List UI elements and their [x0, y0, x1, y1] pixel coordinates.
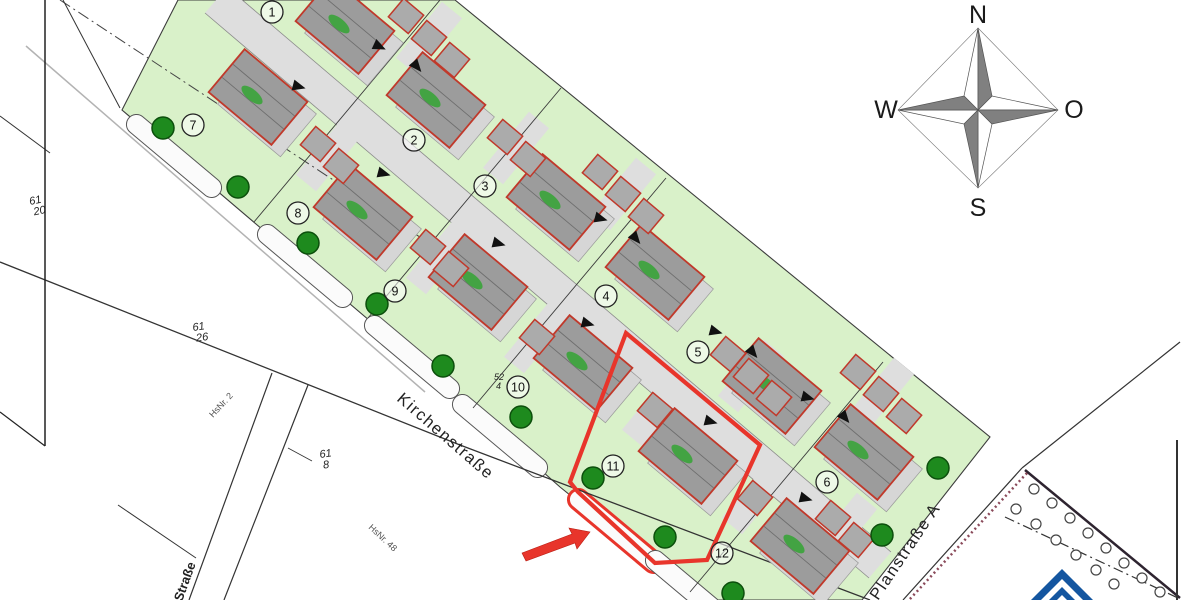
- plot-number-text: 1: [269, 6, 276, 20]
- plot-number-text: 5: [695, 346, 702, 360]
- plot-number-text: 2: [411, 134, 418, 148]
- hedge-circle-icon: [1031, 519, 1041, 529]
- tree-icon: [927, 457, 949, 479]
- hedge-circle-icon: [1101, 543, 1111, 553]
- compass-label-east: O: [1064, 96, 1083, 124]
- hedge-circle-icon: [1137, 573, 1147, 583]
- compass-label-north: N: [969, 1, 987, 29]
- tree-icon: [582, 467, 604, 489]
- site-plan-map: 123456789101112 61206126618524HsNr. 2HsN…: [0, 0, 1200, 600]
- plot-number-text: 6: [824, 476, 831, 490]
- compass-label-south: S: [970, 194, 987, 222]
- plot-number-text: 12: [715, 547, 729, 561]
- plot-number-text: 10: [511, 381, 525, 395]
- hedge-circle-icon: [1155, 587, 1165, 597]
- tree-icon: [871, 524, 893, 546]
- plot-number-text: 7: [190, 119, 197, 133]
- hedge-circle-icon: [1011, 504, 1021, 514]
- plot-number-text: 3: [482, 180, 489, 194]
- hedge-circle-icon: [1119, 558, 1129, 568]
- hedge-circle-icon: [1029, 484, 1039, 494]
- tree-icon: [297, 232, 319, 254]
- plot-number-text: 11: [607, 460, 620, 474]
- tree-icon: [722, 582, 744, 600]
- tree-icon: [432, 355, 454, 377]
- tree-icon: [510, 406, 532, 428]
- tree-icon: [654, 526, 676, 548]
- hedge-circle-icon: [1109, 579, 1119, 589]
- hedge-circle-icon: [1091, 565, 1101, 575]
- plot-number-text: 4: [603, 290, 610, 304]
- compass-label-west: W: [874, 96, 898, 124]
- hedge-circle-icon: [1065, 513, 1075, 523]
- plot-number-text: 9: [392, 285, 399, 299]
- hedge-circle-icon: [1051, 535, 1061, 545]
- tree-icon: [227, 176, 249, 198]
- hedge-circle-icon: [1071, 550, 1081, 560]
- hedge-circle-icon: [1083, 528, 1093, 538]
- plot-number-text: 8: [295, 207, 302, 221]
- hedge-circle-icon: [1047, 498, 1057, 508]
- site-plan-page: 123456789101112 61206126618524HsNr. 2HsN…: [0, 0, 1200, 600]
- tree-icon: [152, 117, 174, 139]
